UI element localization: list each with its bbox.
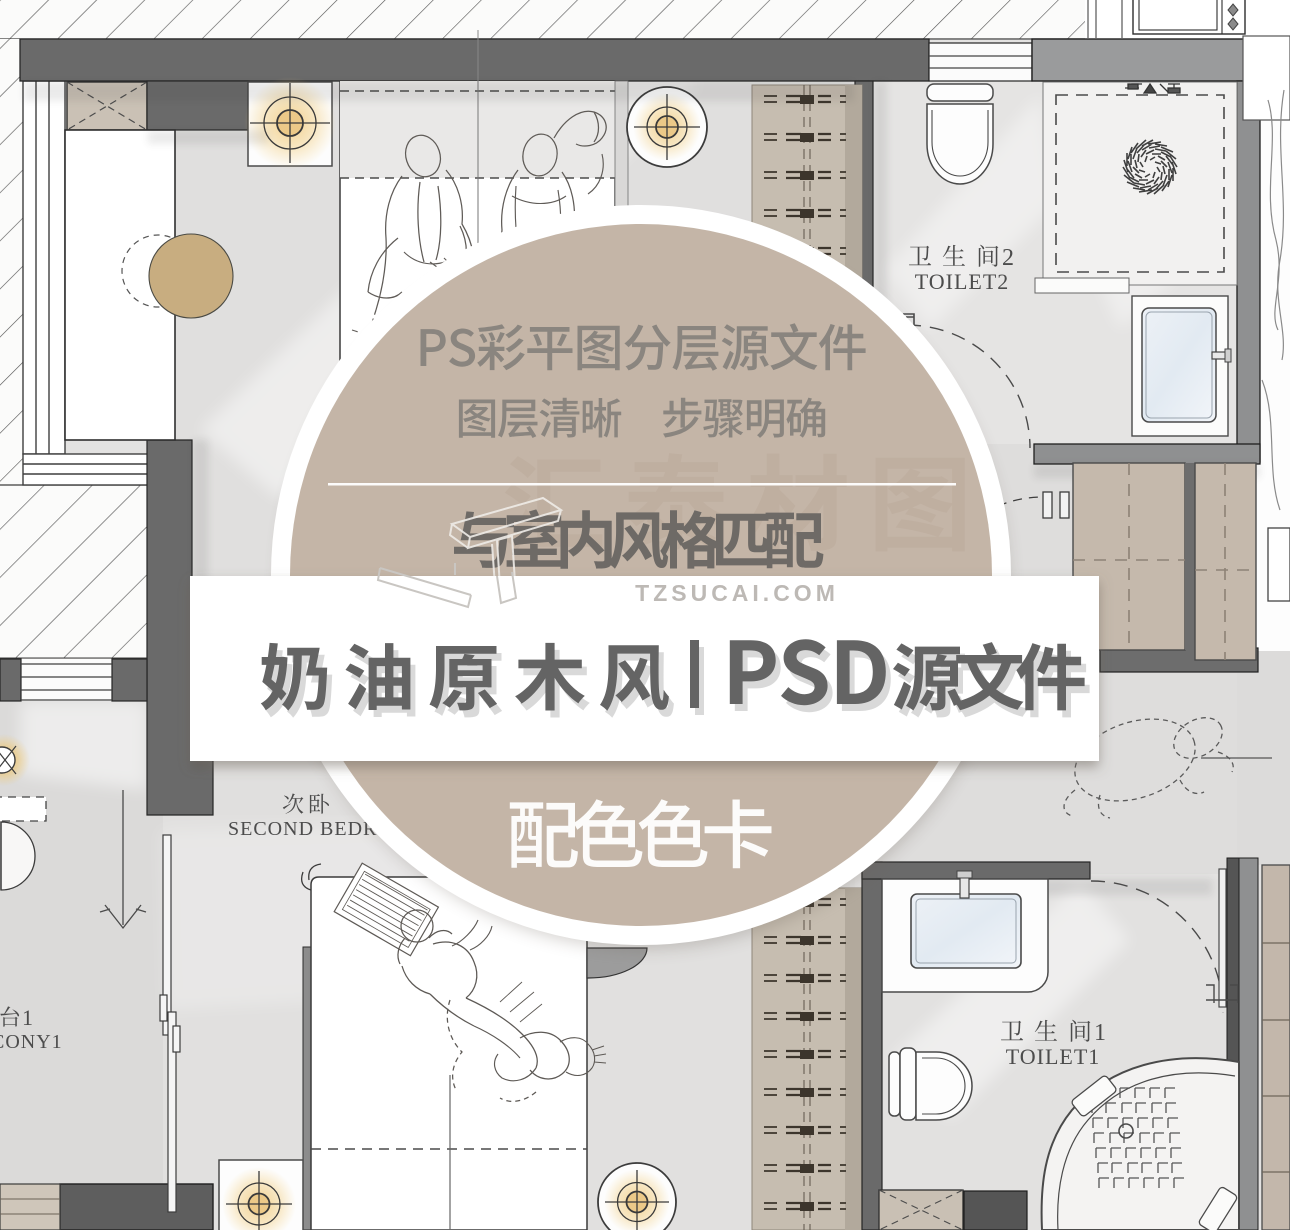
svg-text:BALCONY1: BALCONY1 [0,1031,63,1053]
svg-text:1: 1 [1094,1020,1106,1046]
svg-text:2: 2 [1002,245,1014,271]
svg-text:1: 1 [22,1005,33,1030]
svg-text:TOILET1: TOILET1 [1006,1044,1101,1069]
svg-text:TZSUCAI.COM: TZSUCAI.COM [635,580,839,606]
svg-text:TOILET2: TOILET2 [915,269,1010,294]
